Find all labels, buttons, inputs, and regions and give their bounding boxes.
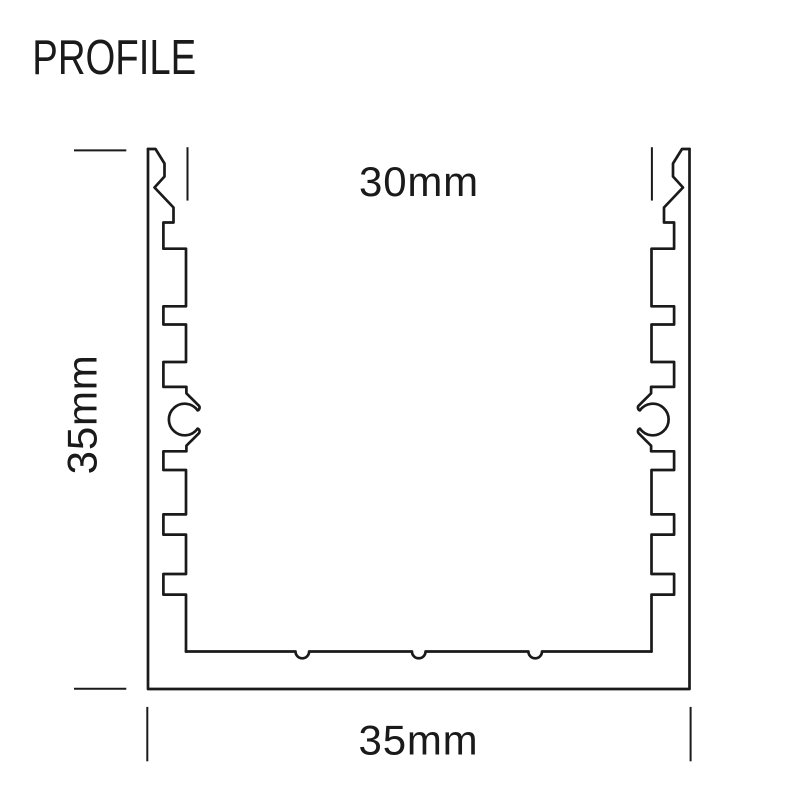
svg-text:35mm: 35mm [359, 716, 479, 763]
svg-text:PROFILE: PROFILE [32, 30, 196, 85]
svg-text:30mm: 30mm [359, 158, 479, 205]
svg-text:35mm: 35mm [58, 354, 105, 474]
